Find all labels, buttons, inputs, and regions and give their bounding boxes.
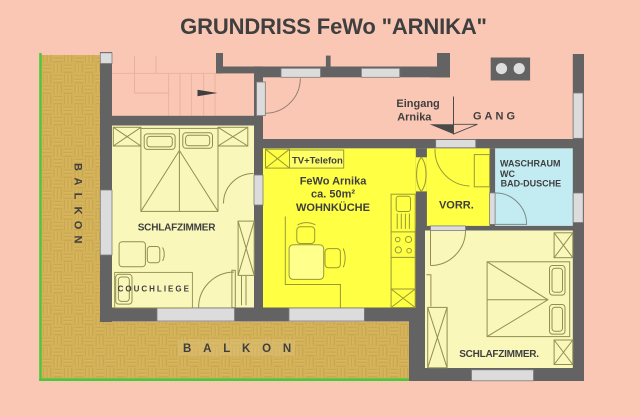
- svg-text:O: O: [72, 221, 84, 230]
- svg-text:TV+Telefon: TV+Telefon: [292, 155, 343, 166]
- svg-text:WOHNKÜCHE: WOHNKÜCHE: [296, 201, 370, 214]
- svg-text:A: A: [72, 178, 84, 186]
- svg-text:L: L: [72, 193, 84, 200]
- svg-text:VORR.: VORR.: [439, 200, 474, 212]
- svg-text:ca. 50m²: ca. 50m²: [311, 189, 355, 201]
- svg-text:Arnika: Arnika: [397, 111, 432, 123]
- svg-text:WC: WC: [500, 169, 515, 179]
- svg-text:FeWo Arnika: FeWo Arnika: [300, 176, 368, 188]
- svg-text:GANG: GANG: [473, 111, 518, 123]
- svg-text:COUCHLIEGE: COUCHLIEGE: [118, 285, 191, 294]
- svg-text:BALKON: BALKON: [183, 343, 303, 355]
- svg-text:K: K: [72, 207, 84, 215]
- svg-text:N: N: [72, 236, 84, 244]
- svg-text:Eingang: Eingang: [396, 98, 439, 110]
- svg-text:B: B: [72, 163, 84, 171]
- svg-text:SCHLAFZIMMER.: SCHLAFZIMMER.: [459, 349, 539, 360]
- svg-text:GRUNDRISS FeWo "ARNIKA": GRUNDRISS FeWo "ARNIKA": [180, 14, 487, 39]
- svg-text:SCHLAFZIMMER: SCHLAFZIMMER: [138, 223, 217, 234]
- svg-text:WASCHRAUM: WASCHRAUM: [500, 159, 561, 169]
- svg-text:BAD-DUSCHE: BAD-DUSCHE: [501, 179, 561, 189]
